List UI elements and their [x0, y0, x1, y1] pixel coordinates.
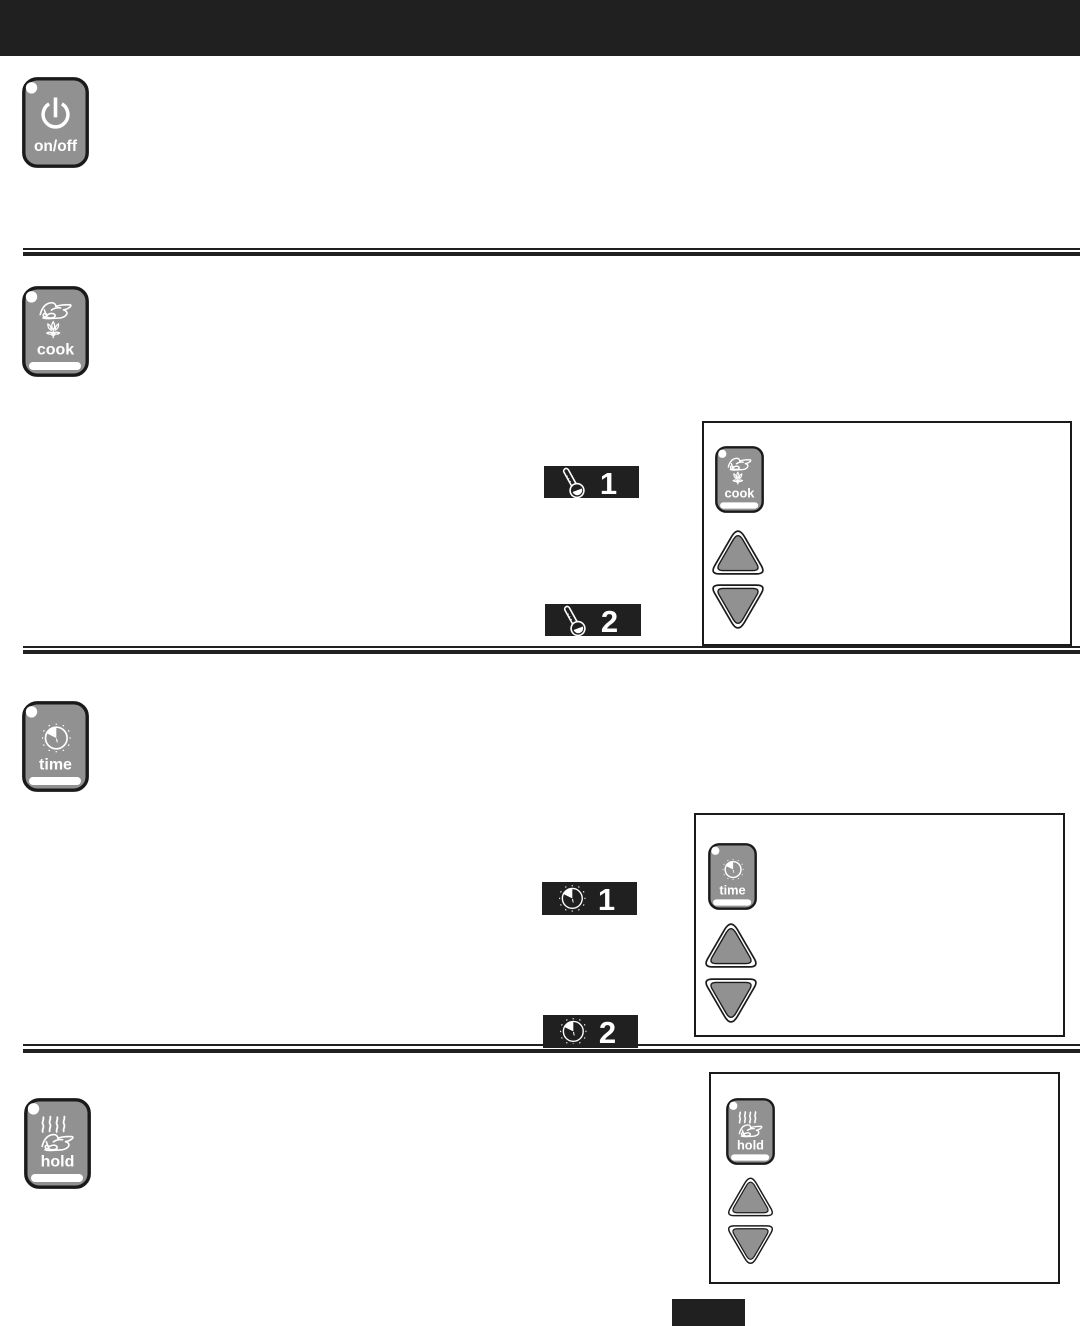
- svg-text:1: 1: [600, 466, 617, 499]
- svg-text:hold: hold: [737, 1137, 764, 1152]
- svg-text:hold: hold: [41, 1153, 75, 1170]
- svg-text:time: time: [719, 882, 745, 897]
- svg-text:time: time: [39, 757, 72, 774]
- svg-text:2: 2: [599, 1015, 616, 1048]
- svg-text:2: 2: [601, 604, 618, 637]
- svg-text:cook: cook: [37, 342, 74, 359]
- svg-text:cook: cook: [725, 485, 756, 500]
- svg-text:on/off: on/off: [34, 138, 78, 155]
- svg-text:1: 1: [598, 882, 615, 915]
